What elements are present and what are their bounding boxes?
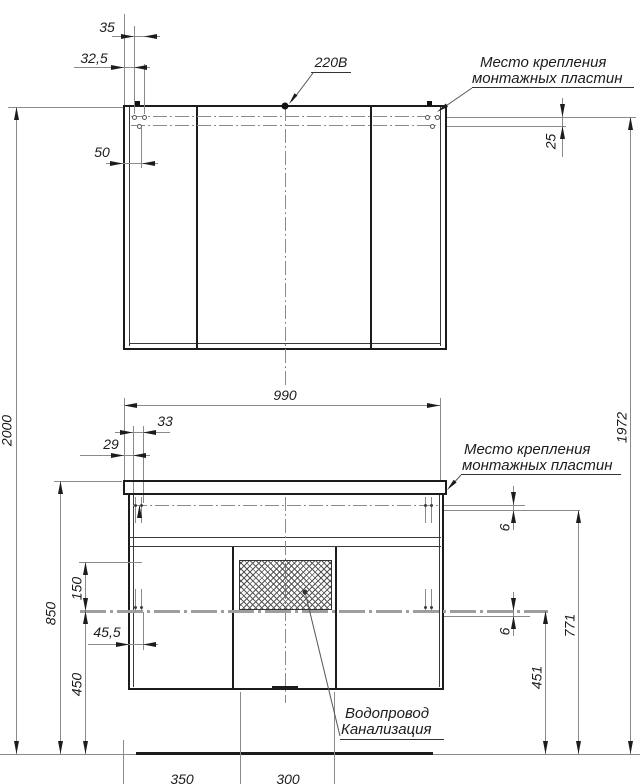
installation-drawing: 35 32,5 50 220В Место крепления монтажны… [0,0,640,784]
leader-arrowhead [289,93,298,104]
leader-overlay [0,0,640,784]
voltage-point-dot [282,103,289,110]
plumbing-point-dot [303,590,308,595]
leader-arrowhead [447,480,457,490]
leader-arrowhead [437,104,448,113]
